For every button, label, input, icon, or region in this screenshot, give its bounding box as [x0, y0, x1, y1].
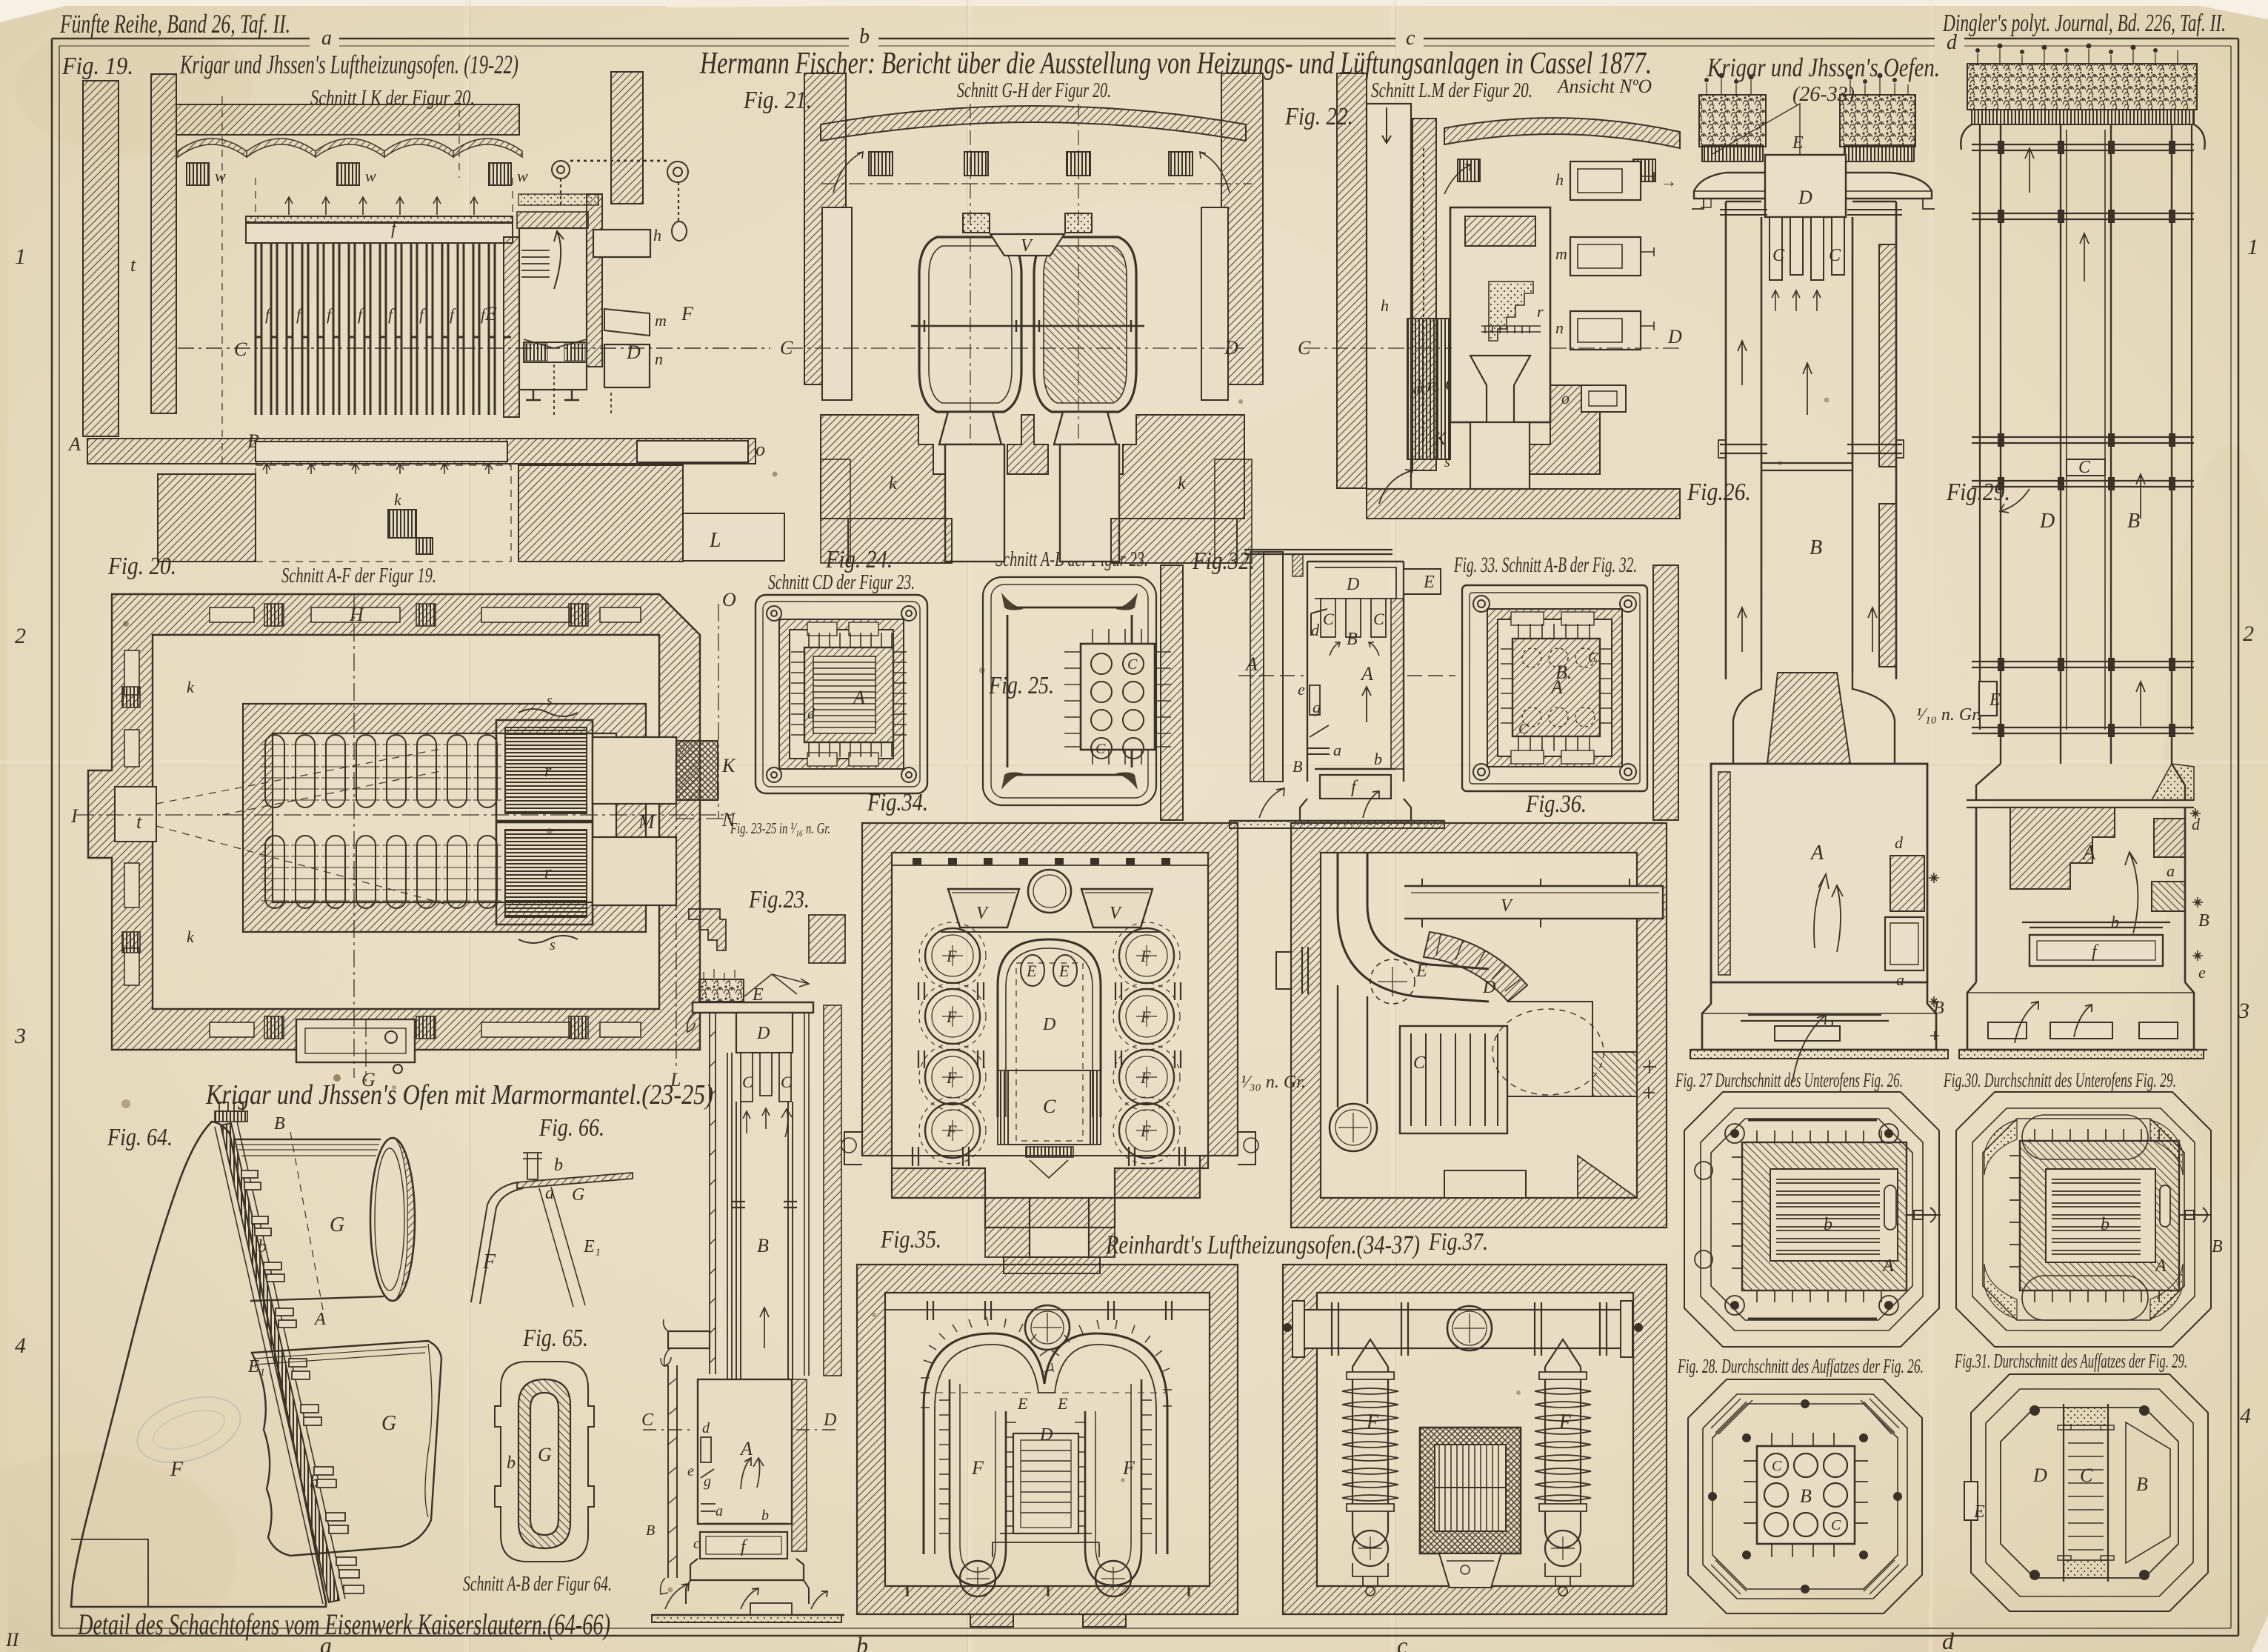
svg-text:A: A	[852, 687, 865, 708]
svg-text:C: C	[1095, 741, 1106, 757]
svg-text:o: o	[1561, 389, 1570, 407]
svg-text:h: h	[653, 226, 661, 244]
svg-text:A: A	[2154, 1256, 2167, 1276]
svg-text:a: a	[545, 1184, 554, 1203]
svg-text:A: A	[1360, 663, 1373, 685]
svg-text:C: C	[1518, 721, 1529, 737]
svg-text:D: D	[756, 1024, 770, 1043]
svg-text:h: h	[1555, 170, 1564, 189]
svg-text:c: c	[1397, 1632, 1407, 1652]
svg-text:Fig.23.: Fig.23.	[748, 886, 810, 913]
svg-text:Fig. 27 Durchschnitt des Unter: Fig. 27 Durchschnitt des Unterofens Fig.…	[1675, 1069, 1903, 1091]
svg-text:3: 3	[14, 1024, 26, 1048]
svg-text:r: r	[1537, 302, 1544, 321]
svg-text:F: F	[482, 1250, 496, 1273]
svg-text:e: e	[2198, 963, 2206, 982]
svg-text:F: F	[170, 1458, 184, 1481]
svg-text:G: G	[381, 1412, 396, 1435]
svg-text:a: a	[716, 1503, 723, 1519]
svg-text:G: G	[538, 1444, 552, 1465]
svg-text:n: n	[655, 350, 663, 368]
svg-text:V: V	[1021, 236, 1033, 256]
svg-text:b: b	[2101, 1215, 2109, 1234]
svg-text:r: r	[544, 762, 552, 781]
svg-text:w: w	[517, 167, 528, 185]
svg-text:C: C	[234, 339, 247, 360]
svg-text:C: C	[781, 1073, 792, 1091]
svg-text:m: m	[655, 311, 667, 330]
svg-text:B: B	[274, 1114, 285, 1133]
svg-text:a: a	[321, 27, 332, 50]
svg-text:Fig.26.: Fig.26.	[1687, 479, 1751, 506]
svg-text:G: G	[330, 1213, 344, 1236]
svg-text:C: C	[1772, 1458, 1782, 1474]
svg-text:Fig. 21.: Fig. 21.	[743, 87, 812, 114]
svg-text:D: D	[1039, 1425, 1053, 1445]
svg-text:B: B	[2198, 911, 2209, 930]
svg-text:2: 2	[15, 624, 26, 648]
svg-text:4: 4	[15, 1333, 26, 1358]
svg-text:D: D	[823, 1410, 836, 1430]
svg-text:t: t	[136, 811, 142, 833]
svg-text:Krigar und Jhssen's Oefen.: Krigar und Jhssen's Oefen.	[1707, 53, 1940, 82]
svg-text:D: D	[2032, 1465, 2047, 1486]
svg-text:E: E	[1026, 962, 1037, 980]
svg-text:1: 1	[15, 244, 26, 269]
svg-text:V: V	[976, 904, 989, 923]
svg-text:Fig.37.: Fig.37.	[1428, 1228, 1488, 1256]
svg-text:2: 2	[2243, 622, 2254, 646]
svg-text:E: E	[1017, 1394, 1028, 1413]
svg-text:C: C	[1829, 246, 1841, 265]
svg-text:a: a	[1896, 970, 1904, 989]
svg-text:b: b	[258, 1237, 267, 1256]
svg-text:m: m	[1555, 244, 1567, 263]
svg-text:d: d	[1895, 833, 1904, 852]
svg-text:r: r	[544, 863, 552, 882]
svg-text:h: h	[1381, 296, 1389, 315]
svg-text:k: k	[889, 474, 897, 493]
svg-text:4: 4	[2240, 1404, 2251, 1428]
svg-text:w: w	[365, 167, 376, 185]
svg-text:C: C	[1373, 610, 1384, 628]
svg-text:Fig. 64.: Fig. 64.	[107, 1124, 173, 1151]
svg-text:Schnitt L.M der Figur 20.: Schnitt L.M der Figur 20.	[1371, 79, 1532, 102]
svg-text:K: K	[721, 755, 736, 776]
svg-text:C: C	[742, 1073, 753, 1091]
svg-text:B: B	[1800, 1485, 1812, 1507]
svg-text:w: w	[215, 167, 226, 185]
svg-text:d: d	[702, 1420, 710, 1436]
svg-text:E: E	[1989, 690, 2001, 710]
svg-text:Fig.31. Durchschnitt des Aufſa: Fig.31. Durchschnitt des Aufſatzes der F…	[1954, 1350, 2187, 1372]
svg-text:s: s	[550, 937, 556, 953]
svg-text:C: C	[1772, 246, 1785, 265]
svg-text:A: A	[67, 433, 81, 455]
svg-text:¹⁄₁₀ n. Gr.: ¹⁄₁₀ n. Gr.	[1916, 705, 1981, 725]
svg-text:C: C	[1043, 1096, 1056, 1117]
svg-text:E₁: E₁	[583, 1237, 601, 1256]
svg-text:3: 3	[2238, 999, 2249, 1023]
svg-text:E: E	[1415, 962, 1427, 981]
svg-text:G: G	[361, 1069, 376, 1090]
svg-text:k: k	[187, 678, 195, 696]
svg-text:Fig.36.: Fig.36.	[1525, 790, 1587, 818]
svg-text:A: A	[1881, 1256, 1894, 1276]
svg-text:Schnitt A-B der Figur 64.: Schnitt A-B der Figur 64.	[463, 1573, 612, 1596]
svg-text:C: C	[1298, 337, 1311, 359]
svg-text:O: O	[722, 589, 736, 610]
svg-text:d: d	[2192, 815, 2201, 833]
svg-text:D: D	[1346, 575, 1359, 594]
svg-text:D: D	[626, 342, 641, 363]
svg-text:Detail des Schachtofens vom Ei: Detail des Schachtofens vom Eisenwerk Ka…	[77, 1608, 610, 1641]
svg-text:E: E	[1423, 573, 1435, 592]
svg-text:V: V	[1110, 904, 1122, 923]
svg-text:b: b	[507, 1453, 516, 1473]
svg-text:N: N	[721, 809, 736, 830]
svg-text:Fig.30. Durchschnitt des Unte: Fig.30. Durchschnitt des Unterofens Fig.…	[1943, 1069, 2176, 1091]
svg-text:Fig. 65.: Fig. 65.	[522, 1325, 588, 1352]
svg-text:b: b	[1374, 750, 1382, 768]
svg-text:D: D	[2039, 510, 2055, 533]
svg-text:Schnitt CD der Figur 23.: Schnitt CD der Figur 23.	[768, 571, 915, 594]
svg-text:B: B	[2212, 1237, 2223, 1256]
svg-text:e: e	[1298, 680, 1305, 699]
svg-text:B: B	[1810, 536, 1822, 559]
svg-text:Dingler's polyt. Journal, Bd.: Dingler's polyt. Journal, Bd. 226, Taf. …	[1942, 10, 2226, 37]
svg-text:Schnitt G-H der Figur 20.: Schnitt G-H der Figur 20.	[957, 79, 1111, 102]
svg-text:Fünfte Reihe, Band 26, Taf. II: Fünfte Reihe, Band 26, Taf. II.	[59, 9, 290, 39]
svg-text:B: B	[1347, 630, 1358, 649]
svg-text:c: c	[693, 1536, 700, 1552]
svg-text:n: n	[1555, 319, 1564, 337]
svg-text:A: A	[313, 1310, 326, 1329]
svg-text:b: b	[856, 1632, 868, 1652]
svg-text:d: d	[1311, 621, 1320, 639]
svg-text:g: g	[704, 1473, 711, 1490]
svg-text:B: B	[2136, 1473, 2148, 1495]
svg-text:E: E	[484, 303, 497, 324]
svg-text:A: A	[1550, 676, 1563, 698]
svg-text:A: A	[2081, 842, 2096, 865]
svg-text:s: s	[547, 693, 553, 709]
svg-text:A: A	[739, 1438, 753, 1459]
svg-text:t: t	[130, 254, 136, 276]
svg-text:E: E	[1792, 133, 1804, 153]
svg-text:V: V	[1501, 896, 1513, 916]
svg-text:Fig. 33. Schnitt A-B der Fig.: Fig. 33. Schnitt A-B der Fig. 32.	[1453, 553, 1637, 577]
svg-text:D: D	[1667, 326, 1682, 347]
svg-text:B: B	[757, 1235, 769, 1256]
svg-text:Fig. 28. Durchschnitt des Aufſ: Fig. 28. Durchschnitt des Aufſatzes der …	[1677, 1355, 1924, 1377]
svg-text:D: D	[1224, 337, 1238, 359]
svg-text:b: b	[1824, 1215, 1832, 1234]
svg-text:k: k	[187, 927, 195, 946]
svg-text:Fig. 66.: Fig. 66.	[538, 1114, 604, 1142]
svg-text:C: C	[1127, 656, 1138, 673]
svg-text:A: A	[1810, 842, 1824, 865]
svg-text:D: D	[1042, 1015, 1055, 1034]
svg-text:Fig.35.: Fig.35.	[880, 1226, 941, 1253]
svg-text:E₁: E₁	[247, 1357, 265, 1376]
svg-text:A: A	[1244, 653, 1258, 675]
svg-text:Reinhardt's Luftheizungsofen.(: Reinhardt's Luftheizungsofen.(34-37)	[1105, 1230, 1420, 1259]
svg-text:a: a	[2167, 862, 2175, 880]
svg-text:e: e	[687, 1463, 694, 1479]
svg-text:→: →	[1661, 172, 1677, 190]
svg-text:b: b	[761, 1508, 769, 1524]
svg-text:D: D	[1482, 978, 1495, 997]
svg-text:H: H	[349, 604, 364, 625]
svg-text:Fig. 19.: Fig. 19.	[61, 53, 133, 80]
svg-text:II: II	[5, 1629, 20, 1651]
svg-text:M: M	[638, 811, 656, 833]
svg-text:K: K	[1433, 430, 1447, 449]
svg-text:o: o	[756, 439, 765, 460]
svg-text:b: b	[310, 1473, 318, 1492]
svg-text:Fig. 23-25 in ¹⁄₁₆ n. Gr.: Fig. 23-25 in ¹⁄₁₆ n. Gr.	[730, 819, 830, 837]
svg-text:B: B	[2127, 510, 2140, 533]
svg-text:s: s	[1444, 454, 1450, 470]
svg-text:C: C	[1588, 650, 1598, 666]
svg-text:C: C	[780, 337, 793, 359]
svg-text:F: F	[1558, 1411, 1572, 1433]
svg-text:I: I	[70, 805, 79, 827]
svg-text:F: F	[681, 303, 694, 324]
svg-text:B: B	[1933, 999, 1944, 1018]
svg-text:E: E	[1057, 1394, 1068, 1413]
svg-text:F: F	[1122, 1457, 1135, 1479]
svg-text:C: C	[1831, 1517, 1841, 1533]
svg-text:D: D	[1798, 187, 1812, 208]
svg-text:B: B	[1293, 757, 1302, 776]
svg-text:Ansicht NºO: Ansicht NºO	[1556, 76, 1652, 97]
svg-text:F: F	[971, 1457, 984, 1479]
svg-text:Krigar und Jhssen's Luftheizun: Krigar und Jhssen's Luftheizungsofen. (1…	[179, 50, 518, 79]
svg-text:a: a	[1333, 741, 1341, 759]
svg-text:G: G	[572, 1185, 584, 1205]
svg-text:L: L	[670, 1069, 681, 1090]
svg-text:b: b	[859, 25, 870, 48]
svg-text:Fig. 25.: Fig. 25.	[988, 672, 1054, 699]
svg-text:1: 1	[2247, 235, 2258, 259]
svg-text:E: E	[1973, 1502, 1985, 1522]
svg-text:Schnitt A-F der Figur 19.: Schnitt A-F der Figur 19.	[281, 564, 436, 587]
svg-text:C: C	[1323, 610, 1334, 628]
svg-text:E: E	[1058, 962, 1070, 980]
svg-text:B: B	[646, 1522, 655, 1539]
svg-text:k: k	[1178, 474, 1186, 493]
svg-text:b: b	[554, 1156, 563, 1175]
svg-text:C: C	[641, 1410, 654, 1430]
svg-text:Krigar und Jhssen's Ofen mit M: Krigar und Jhssen's Ofen mit Marmormante…	[205, 1079, 713, 1110]
svg-text:d: d	[1942, 1628, 1955, 1652]
svg-text:F: F	[1366, 1411, 1379, 1433]
svg-text:k: k	[394, 490, 402, 509]
svg-text:C: C	[1413, 1053, 1426, 1073]
svg-text:C: C	[2080, 1465, 2093, 1486]
svg-text:C: C	[2078, 458, 2091, 477]
svg-text:d: d	[807, 706, 816, 722]
svg-text:L: L	[709, 529, 721, 552]
